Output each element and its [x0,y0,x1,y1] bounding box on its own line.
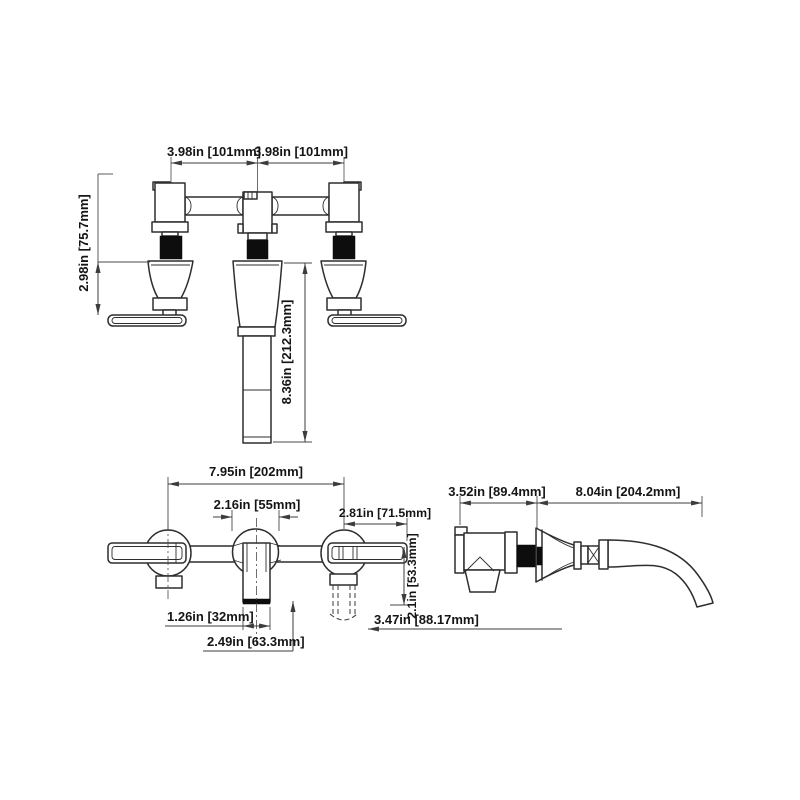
dim-label-handle-swing-clearance: 3.47in [88.17mm] [374,612,479,627]
dim-label-handle-protrusion: 2.98in [75.7mm] [76,194,91,292]
lever-handle [328,543,407,563]
wall-plate [455,535,464,573]
dim-label-handle-clearance: 2.1in [53.3mm] [405,533,419,618]
lever-handle [108,315,186,326]
mount-tab-left [238,224,243,233]
drawing-page: 3.98in [101mm] 3.98in [101mm] 2.98in [75… [0,0,800,800]
valve-hub [156,576,182,588]
valve-hub [330,574,357,585]
spout-curve [608,540,713,607]
spout-ring-1 [574,542,581,569]
dimension-drawing-canvas: 3.98in [101mm] 3.98in [101mm] 2.98in [75… [0,0,800,800]
dim-label-handle-spacing-right: 3.98in [101mm] [254,144,348,159]
dim-label-spout-tube-width: 1.26in [32mm] [167,609,254,624]
plan-left-handle [108,522,191,601]
thread-seal [160,236,182,259]
mount-flange [505,532,517,573]
plan-right-handle [321,530,407,620]
dim-label-handle-length: 2.81in [71.5mm] [339,506,431,520]
spout-column [243,336,271,443]
lever-handle [108,543,186,563]
valve-body [464,533,505,570]
valve-collar [152,222,188,232]
spout-escutcheon [233,261,282,327]
side-spout [455,527,713,607]
lever-handle [328,315,406,326]
supply-elbow [465,570,500,592]
front-dimensions: 3.98in [101mm] 3.98in [101mm] 2.98in [75… [76,144,348,442]
valve-neck [336,232,352,236]
valve-body [155,183,185,222]
thread-seal [333,236,355,259]
dim-label-handle-spacing-left: 3.98in [101mm] [167,144,261,159]
supply-tube-left [185,197,243,215]
side-profile-view: 3.52in [89.4mm] 8.04in [204.2mm] [448,484,713,607]
supply-tube-right [272,197,329,215]
hidden-handle-swing [330,585,357,620]
dim-label-spout-base-width: 2.49in [63.3mm] [207,634,305,649]
dim-label-rough-in-depth: 3.52in [89.4mm] [448,484,546,499]
spout-ring-2 [581,546,588,564]
spout-neck [248,233,267,240]
front-elevation-view: 3.98in [101mm] 3.98in [101mm] 2.98in [75… [76,144,406,443]
spout-ring-3 [599,540,608,569]
right-handle-assembly [321,182,406,326]
thread-seal [517,545,537,567]
valve-neck [162,232,178,236]
handle-base [153,298,187,310]
dim-label-spout-drop: 8.36in [212.3mm] [279,300,294,405]
dim-label-overall-width: 7.95in [202mm] [209,464,303,479]
mount-tab-right [272,224,277,233]
valve-body [329,183,359,222]
handle-base [327,298,361,310]
left-handle-assembly [108,182,193,326]
spout-thread-seal [247,240,268,259]
dim-label-center-flange-width: 2.16in [55mm] [214,497,301,512]
escutcheon [321,261,366,298]
center-spout-assembly [233,192,282,443]
escutcheon [148,261,193,298]
spout-collar [238,327,275,336]
valve-collar [326,222,362,232]
side-dimensions: 3.52in [89.4mm] 8.04in [204.2mm] [448,484,702,528]
dim-label-spout-reach: 8.04in [204.2mm] [576,484,681,499]
spout-valve-cap [244,192,257,199]
plan-center-spout [233,518,282,644]
